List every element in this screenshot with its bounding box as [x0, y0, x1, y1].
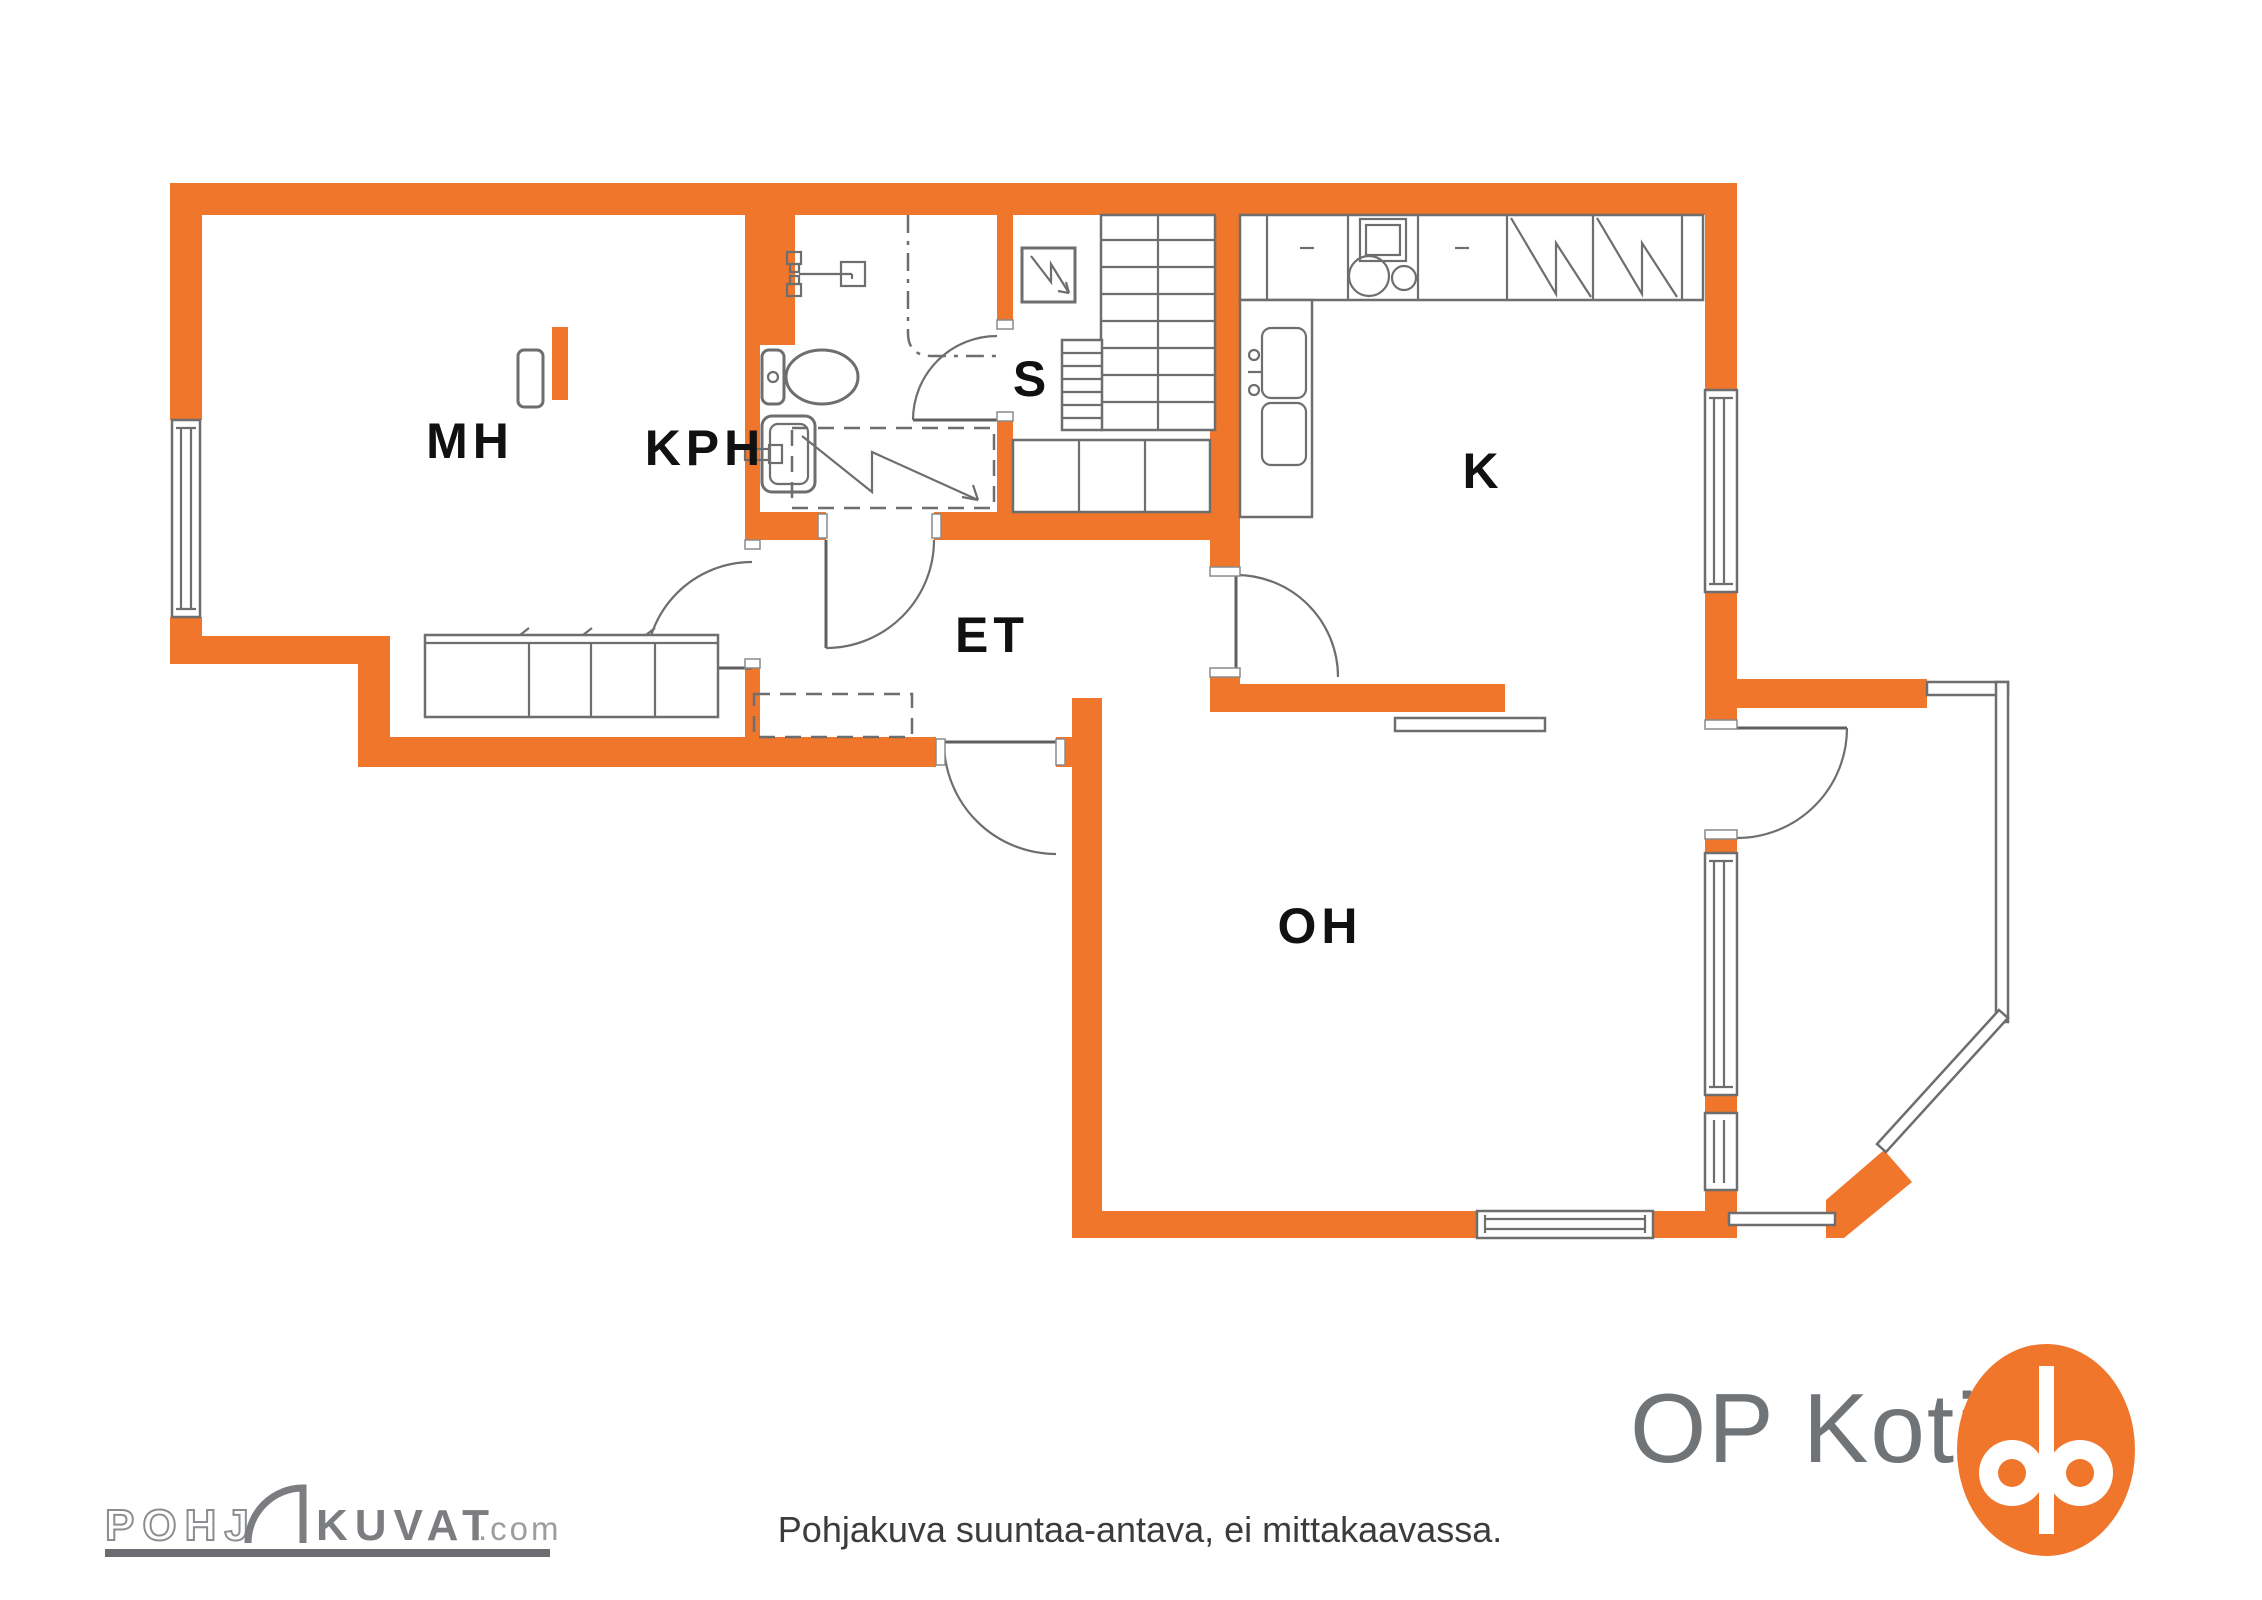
wall-mh-pier — [745, 668, 760, 767]
pohjakuvat-logo-com-text: .com — [478, 1510, 562, 1547]
wardrobe-et — [754, 694, 912, 737]
wall-balcony-top — [1737, 679, 1927, 708]
wall-s-left-upper — [997, 215, 1013, 320]
wall-top — [170, 183, 1737, 215]
room-label-mh: MH — [426, 413, 514, 469]
wall-oh-left — [1072, 698, 1102, 1238]
kitchen-sink-icon — [1240, 300, 1312, 517]
wall-oh-right-c — [1705, 1190, 1737, 1211]
op-emblem-icon — [1957, 1344, 2135, 1556]
wall-oh-right-a — [1705, 838, 1737, 853]
balcony-bottom-rail — [1729, 1213, 1835, 1225]
wall-k-right-top — [1705, 215, 1737, 390]
window-oh-right-lower — [1705, 1113, 1737, 1190]
railing — [1395, 718, 1545, 731]
room-label-k: K — [1462, 443, 1503, 499]
wall-kph-bottom-left — [745, 512, 826, 540]
window-oh-right-upper — [1705, 853, 1737, 1095]
pohjakuvat-logo-solid-text: KUVAT — [316, 1501, 496, 1550]
floorplan-svg: MH KPH S ET K OH POHJ KUVAT .com Pohjaku… — [0, 0, 2262, 1600]
door-sauna — [913, 320, 1013, 421]
window-k-right — [1705, 390, 1737, 592]
wall-left-upper — [170, 215, 202, 420]
floorplan-page: MH KPH S ET K OH POHJ KUVAT .com Pohjaku… — [0, 0, 2262, 1600]
balcony-diagonal-rail — [1877, 1010, 2008, 1152]
door-kph — [818, 514, 941, 648]
wall-k-right-mid — [1705, 592, 1737, 728]
wall-corner-br — [1653, 1211, 1737, 1238]
wall-oh-right-b — [1705, 1095, 1737, 1113]
shower-floor-icon — [792, 428, 994, 508]
balcony-right-rail — [1996, 682, 2008, 1022]
disclaimer-text: Pohjakuva suuntaa-antava, ei mittakaavas… — [778, 1509, 1502, 1550]
door-et-k — [1210, 567, 1338, 677]
pohjakuvat-logo-outline-text: POHJ — [105, 1501, 257, 1550]
op-koti-logo: OP Koti — [1630, 1344, 2135, 1556]
wall-k-bottom — [1210, 684, 1505, 712]
room-label-kph: KPH — [645, 420, 766, 476]
cabinet-mh — [518, 350, 543, 407]
shower-mixer-icon — [787, 252, 865, 296]
wall-oh-bottom — [1072, 1211, 1477, 1238]
room-label-s: S — [1013, 351, 1051, 407]
pohjakuvat-logo-underline — [105, 1549, 550, 1557]
pohjakuvat-logo: POHJ KUVAT .com — [105, 1488, 562, 1557]
wall-balcony-diagonal — [1826, 1150, 1912, 1238]
shower-curtain-line — [908, 215, 997, 356]
window-mh-left — [172, 420, 200, 617]
understairs-closet — [1013, 440, 1210, 512]
wall-kph-chase — [745, 215, 795, 345]
toilet-icon — [762, 350, 858, 404]
stairs — [1062, 215, 1215, 430]
room-label-et: ET — [955, 607, 1029, 663]
room-label-oh: OH — [1278, 898, 1363, 954]
window-oh-bottom — [1477, 1211, 1653, 1238]
flue-icon — [552, 327, 568, 400]
sauna-stove-icon — [1022, 248, 1075, 302]
wall-et-bottom — [358, 737, 936, 767]
wall-s-left-lower — [997, 420, 1013, 512]
wall-s-bottom — [934, 512, 1240, 540]
kitchen-counter — [1240, 215, 1703, 300]
balcony — [1729, 682, 2008, 1225]
op-koti-text: OP Koti — [1630, 1373, 1980, 1483]
wardrobe-mh — [425, 628, 718, 717]
door-balcony — [1705, 720, 1847, 839]
door-et-oh — [936, 739, 1065, 854]
wall-mh-step-h — [170, 636, 390, 664]
